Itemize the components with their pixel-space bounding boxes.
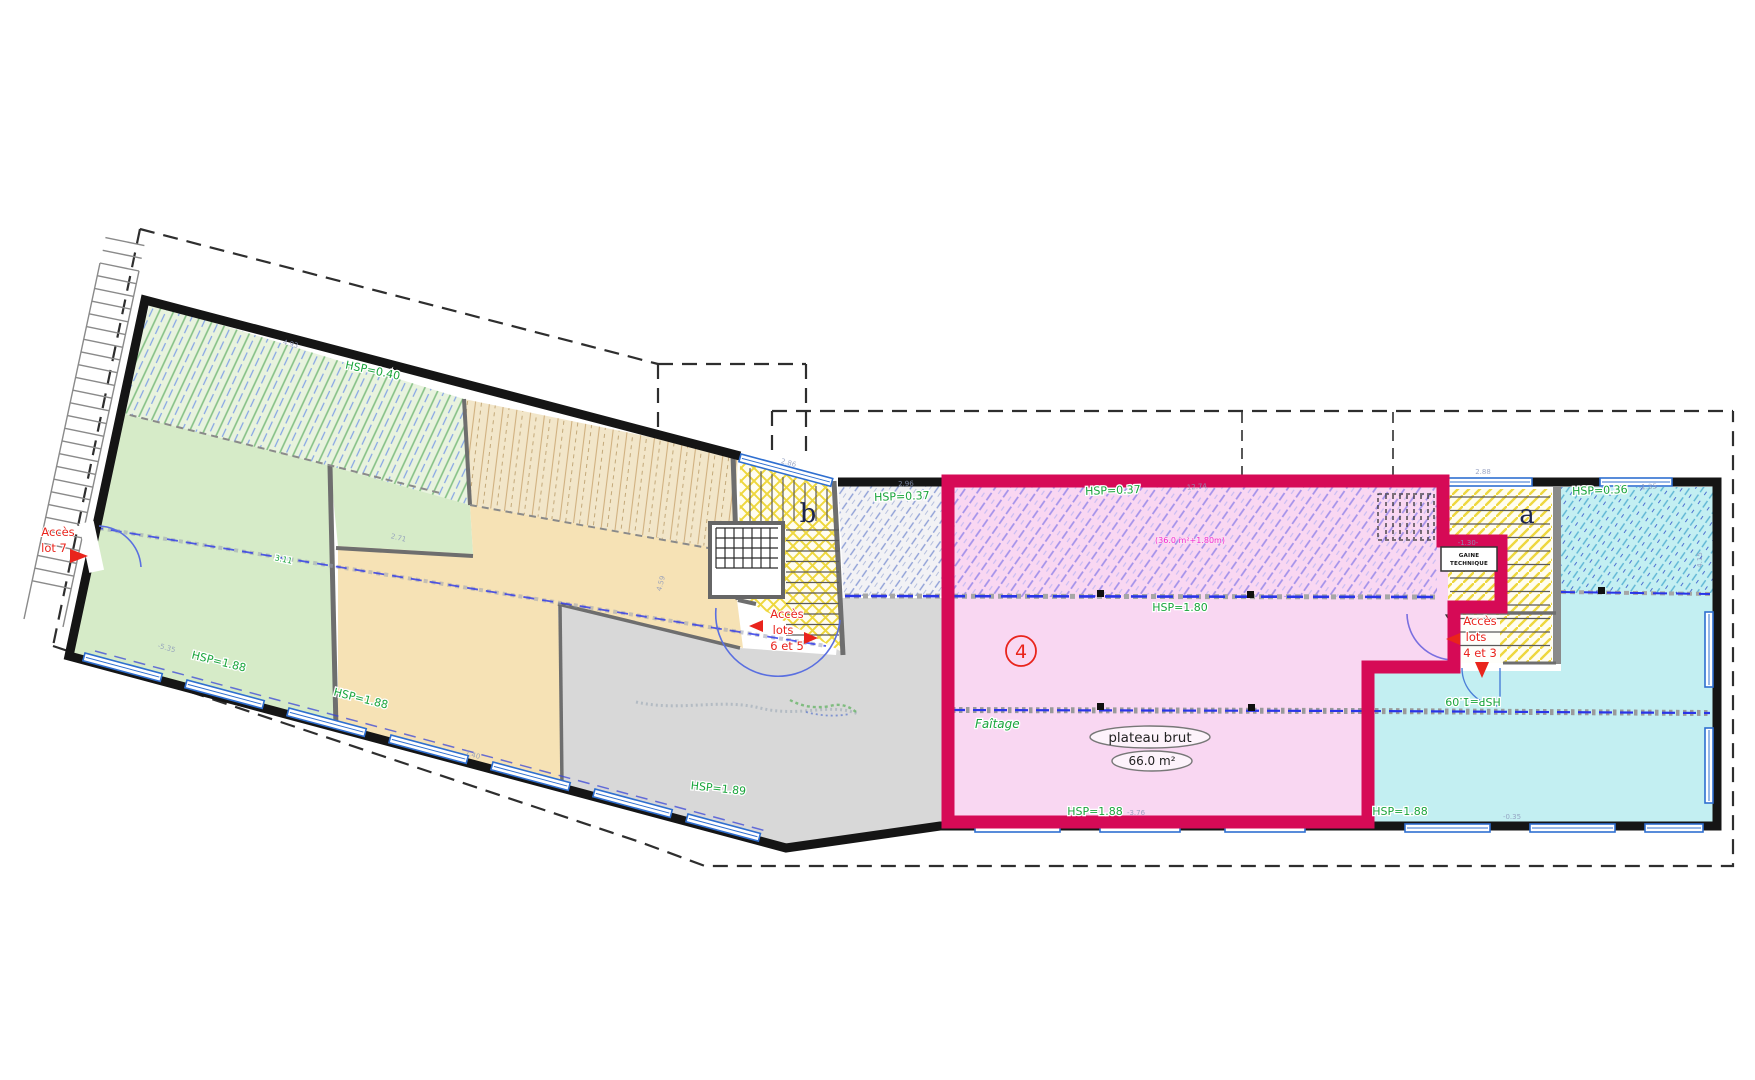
access-lots43-line3: 4 et 3 xyxy=(1463,646,1497,660)
access-lots65-line3: 6 et 5 xyxy=(770,639,804,653)
zone-gray xyxy=(558,598,946,846)
dimension-label: -3.76 xyxy=(1127,809,1146,817)
stair-a-letter: a xyxy=(1519,500,1535,530)
access-lots65-arrow-left-icon xyxy=(749,620,763,632)
dimension-label: -1.35 xyxy=(1639,483,1658,492)
hsp-180-label: HSP=1.80 xyxy=(1152,601,1208,614)
window xyxy=(1705,728,1713,803)
faitage-label: Faîtage xyxy=(975,717,1020,731)
dimension-label: 12.74 xyxy=(1187,482,1208,491)
floor-plan-canvas: GAINE TECHNIQUE Accès lot 7 Accès lots 6… xyxy=(0,0,1755,1080)
hsp-188-cyan-label: HSP=1.88 xyxy=(1372,805,1428,818)
dimension-label: -0.35 xyxy=(1503,813,1521,821)
access-lots65-line2: lots xyxy=(773,623,794,637)
gaine-label-2: TECHNIQUE xyxy=(1450,561,1488,567)
window xyxy=(1645,824,1703,832)
area-label: 66.0 m² xyxy=(1128,754,1175,768)
stair-b-landing xyxy=(710,523,783,597)
hsp-188-pink-label: HSP=1.88 xyxy=(1067,805,1123,818)
floor-plan-page: GAINE TECHNIQUE Accès lot 7 Accès lots 6… xyxy=(0,0,1755,1080)
access-lots65-line1: Accès xyxy=(770,607,803,621)
plateau-brut-tag: plateau brut xyxy=(1090,726,1210,748)
access-lot7-line1: Accès xyxy=(41,525,74,539)
gaine-technique-box: GAINE TECHNIQUE xyxy=(1441,547,1497,571)
stair-tread xyxy=(78,365,117,373)
hsp-036-label: HSP=0.36 xyxy=(1572,483,1628,498)
area-tag: 66.0 m² xyxy=(1112,751,1192,771)
stair-b-letter: b xyxy=(800,499,817,529)
hsp-037-left-label: HSP=0.37 xyxy=(874,489,930,504)
window xyxy=(1705,612,1713,687)
hsp-109-label: HSP=1.09 xyxy=(1445,695,1501,708)
window xyxy=(1405,824,1490,832)
access-lots43-line1: Accès xyxy=(1463,614,1496,628)
dimension-label: 4.15 xyxy=(1696,552,1704,568)
hsp-037-pink-label: HSP=0.37 xyxy=(1085,483,1141,498)
area-under-slope-note: (36.0 m²+1.80m) xyxy=(1155,536,1225,545)
stair-tread xyxy=(103,250,142,258)
stair-tread xyxy=(49,505,88,513)
stair-tread xyxy=(54,479,93,487)
dimension-label: 2.88 xyxy=(1475,468,1491,476)
lot-number-label: 4 xyxy=(1015,641,1027,663)
stair-tread xyxy=(89,314,128,322)
window xyxy=(1448,478,1532,486)
dimension-label: -1.30- xyxy=(1458,539,1479,547)
dimension-label: 2.96 xyxy=(898,480,914,489)
window xyxy=(1530,824,1615,832)
gaine-label-1: GAINE xyxy=(1459,553,1480,559)
stair-tread xyxy=(84,339,123,347)
plateau-brut-label: plateau brut xyxy=(1108,730,1191,746)
zone-fills xyxy=(71,303,1713,846)
access-lots43-line2: lots xyxy=(1466,630,1487,644)
zone-cyan-hatched-overlay xyxy=(1561,487,1713,593)
access-lot7-line2: lot 7 xyxy=(41,541,67,555)
